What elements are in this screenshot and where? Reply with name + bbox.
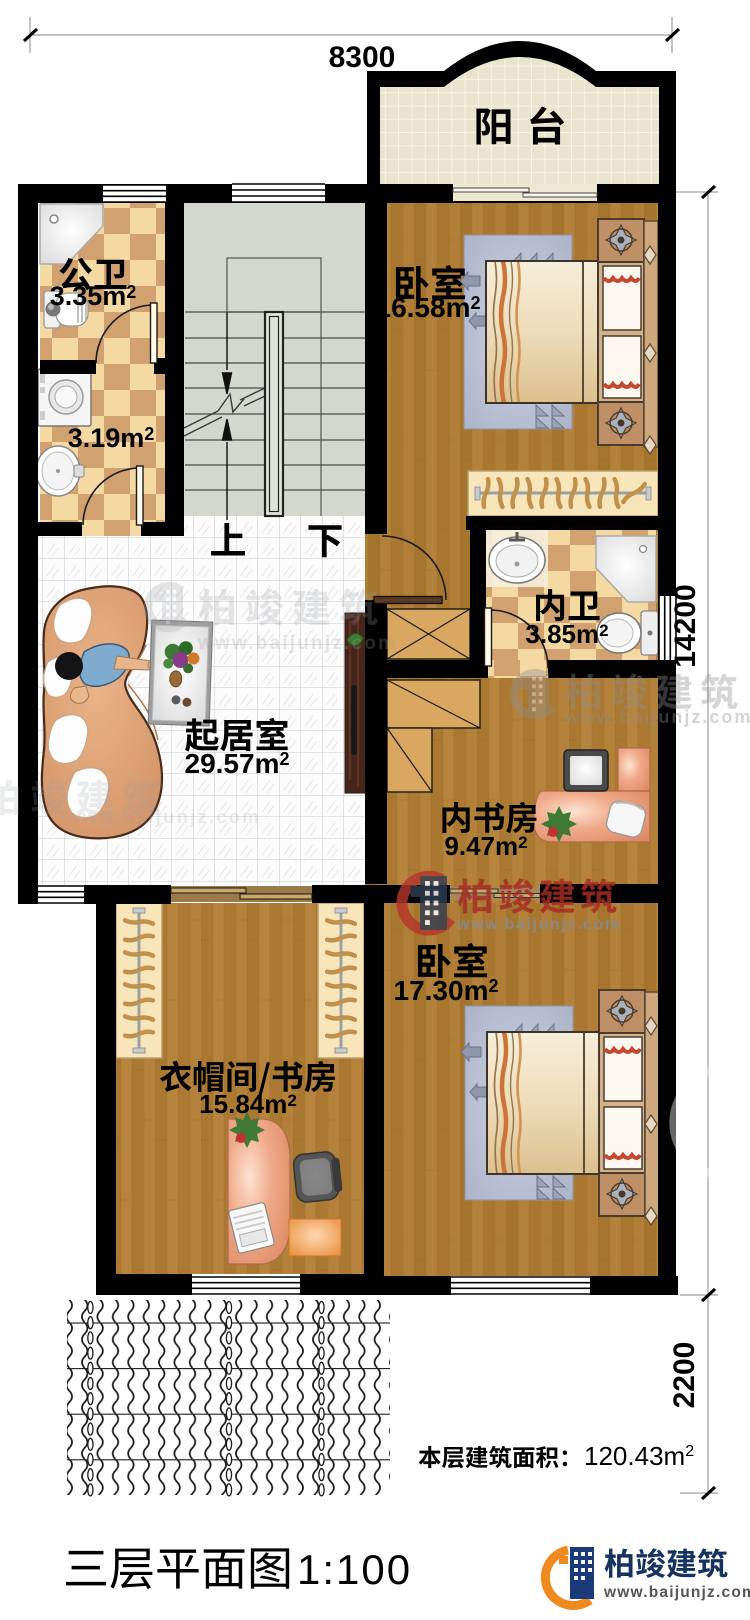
- svg-text:3.85m2: 3.85m2: [525, 619, 608, 649]
- svg-text:3.19m2: 3.19m2: [68, 423, 155, 453]
- svg-text:www.baijunjz.com: www.baijunjz.com: [603, 1584, 750, 1601]
- svg-text:2200: 2200: [668, 1342, 701, 1409]
- svg-text:120.43m2: 120.43m2: [584, 1441, 694, 1471]
- svg-text:www.baijunjz.com: www.baijunjz.com: [197, 633, 397, 654]
- svg-text:8300: 8300: [329, 41, 396, 74]
- svg-text:1:100: 1:100: [297, 1546, 412, 1593]
- svg-text:www.baijunjz.com: www.baijunjz.com: [456, 916, 621, 933]
- svg-text:9.47m2: 9.47m2: [444, 831, 527, 861]
- svg-text:16.58m2: 16.58m2: [376, 292, 481, 323]
- svg-text:15.84m2: 15.84m2: [199, 1089, 297, 1119]
- svg-text:www.baijunjz.com: www.baijunjz.com: [564, 707, 750, 727]
- svg-text:29.57m2: 29.57m2: [185, 748, 290, 779]
- svg-text:3.35m2: 3.35m2: [50, 281, 137, 311]
- svg-text:14200: 14200: [669, 584, 702, 667]
- svg-text:www.baijunjz.com: www.baijunjz.com: [65, 806, 261, 827]
- svg-text:17.30m2: 17.30m2: [394, 975, 499, 1006]
